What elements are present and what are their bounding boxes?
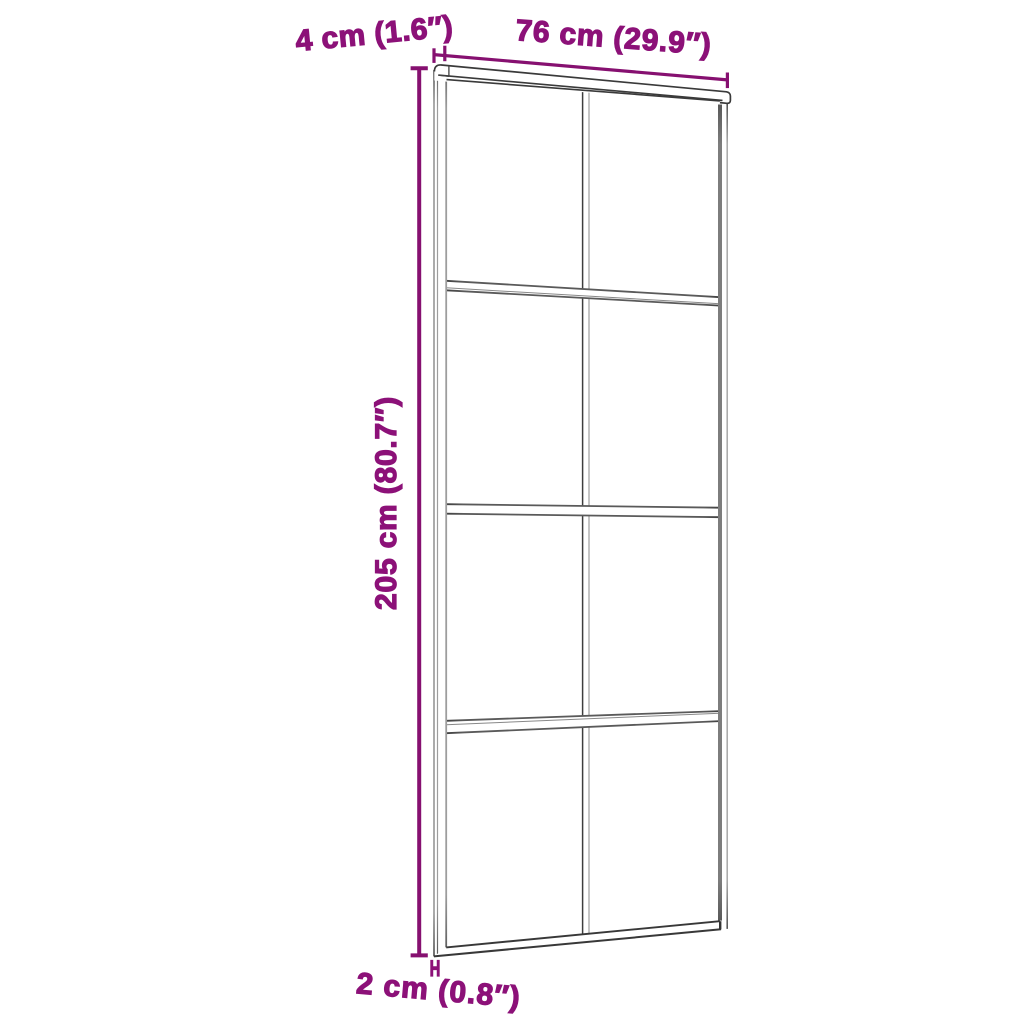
svg-text:76 cm (29.9″): 76 cm (29.9″): [514, 14, 712, 62]
svg-text:4 cm (1.6″): 4 cm (1.6″): [294, 10, 455, 58]
svg-text:H: H: [430, 956, 441, 981]
svg-text:205 cm (80.7″): 205 cm (80.7″): [370, 396, 403, 610]
